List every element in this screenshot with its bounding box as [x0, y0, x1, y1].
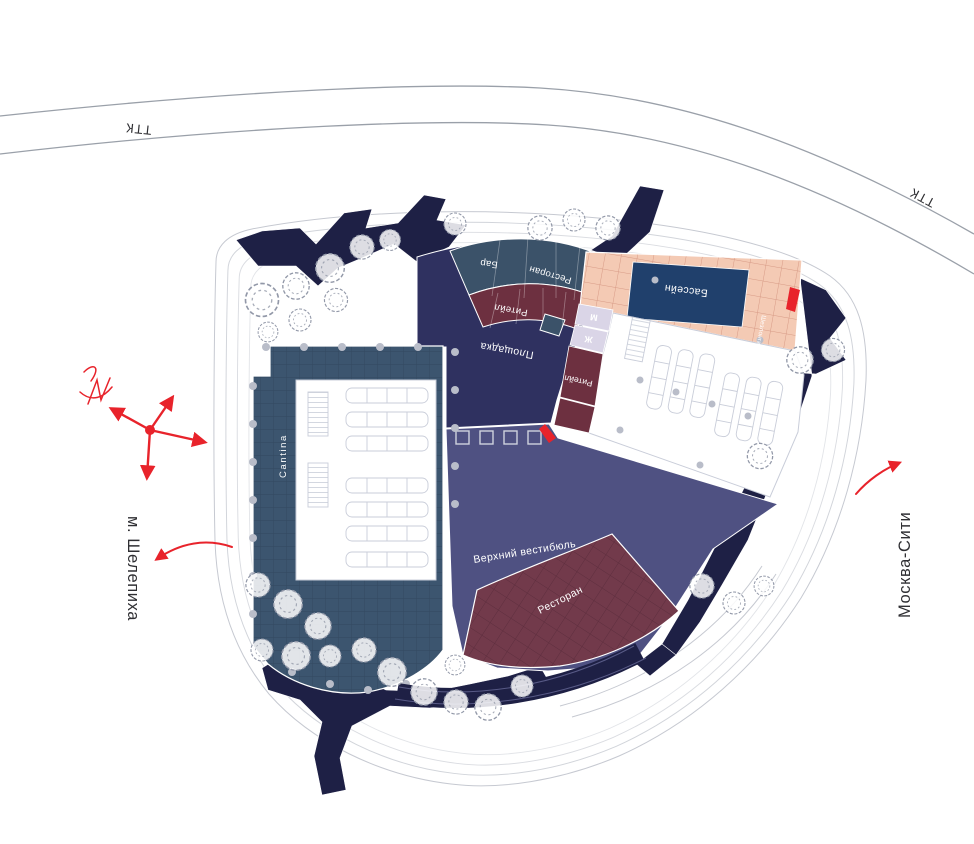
- table-row: [346, 526, 428, 541]
- tree-icon: [289, 309, 311, 331]
- tree-icon: [723, 592, 745, 614]
- wc-men-label: М: [589, 312, 598, 323]
- tree-icon: [282, 642, 311, 671]
- cantina-label: Cantina: [278, 434, 289, 478]
- tree-icon: [350, 235, 374, 259]
- arrow-to-metro: [157, 543, 232, 559]
- table-row: [346, 478, 428, 493]
- ttk-label-right: ТТК: [907, 185, 937, 211]
- tree-icon: [754, 576, 774, 596]
- compass-arrow-w: [112, 409, 150, 430]
- tree-icon: [258, 322, 278, 342]
- table-row: [346, 436, 428, 451]
- tree-icon: [319, 645, 341, 667]
- tree-icon: [324, 288, 347, 311]
- table-row: [346, 412, 428, 427]
- tree-icon: [475, 694, 501, 720]
- tree-icon: [283, 273, 309, 299]
- tree-icon: [411, 679, 437, 705]
- tree-icon: [690, 574, 714, 598]
- tree-icon: [246, 284, 279, 317]
- tree-icon: [274, 590, 303, 619]
- tree-icon: [747, 443, 772, 468]
- tree-icon: [787, 347, 813, 373]
- compass-arrow-e: [150, 430, 204, 442]
- metro-label: м. Шелепиха: [124, 516, 142, 621]
- tree-icon: [378, 658, 407, 687]
- tree-icon: [251, 639, 273, 661]
- tree-icon: [380, 230, 401, 251]
- site-plan: ТТК ТТК: [0, 0, 974, 844]
- stairs-icon: [308, 392, 328, 436]
- bar-label: Бар: [479, 257, 498, 270]
- tree-icon: [352, 638, 376, 662]
- ttk-label-left: ТТК: [124, 120, 152, 138]
- tree-icon: [246, 573, 270, 597]
- tree-icon: [528, 216, 552, 240]
- north-scribble: [80, 367, 112, 404]
- tree-icon: [445, 655, 465, 675]
- tree-icon: [444, 213, 466, 235]
- tree-icon: [821, 338, 844, 361]
- tree-icon: [316, 254, 345, 283]
- tree-icon: [596, 216, 620, 240]
- tree-icon: [563, 209, 585, 231]
- table-row: [346, 552, 428, 567]
- tree-icon: [444, 690, 468, 714]
- compass-arrow-ne: [150, 398, 172, 430]
- table-row: [346, 388, 428, 403]
- tree-icon: [511, 675, 533, 697]
- compass-arrow-s: [147, 430, 150, 477]
- arrow-to-city: [856, 463, 899, 494]
- cantina-building: Cantina: [249, 343, 459, 694]
- table-row: [346, 502, 428, 517]
- stairs-icon: [308, 463, 328, 507]
- tree-icon: [305, 613, 331, 639]
- city-label: Москва-Сити: [896, 512, 914, 618]
- north-compass: [80, 367, 204, 477]
